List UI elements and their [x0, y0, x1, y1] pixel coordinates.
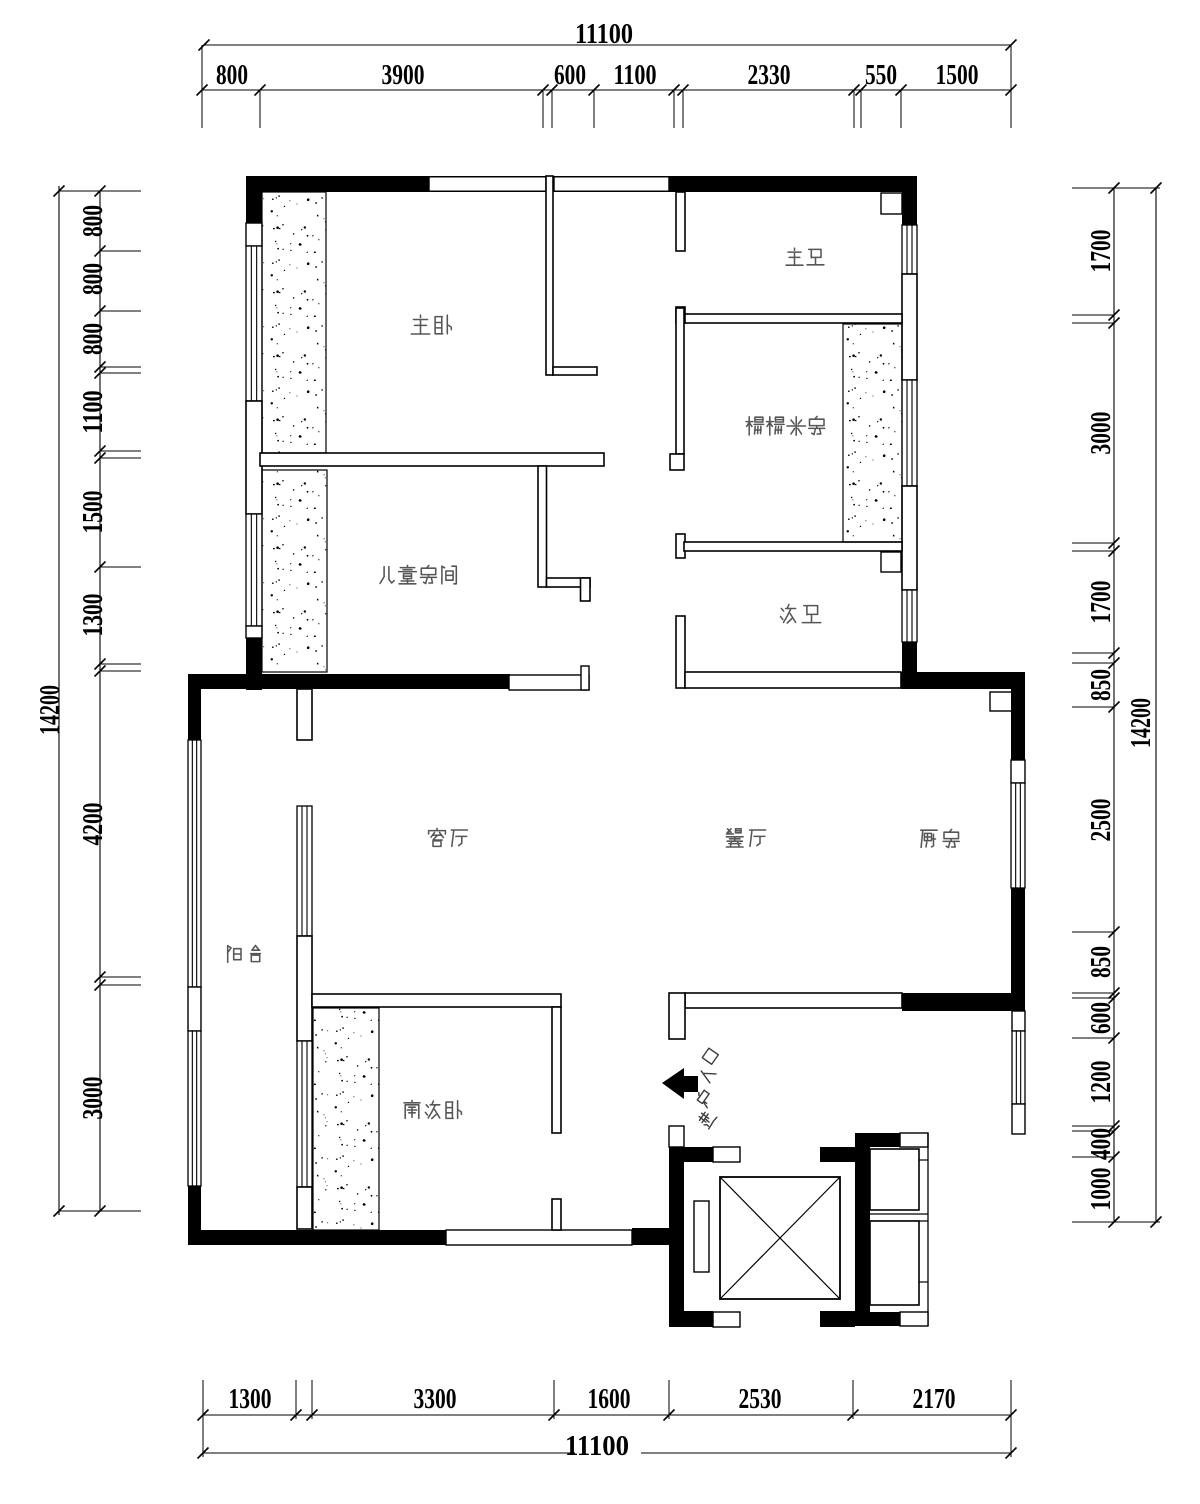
- svg-text:1700: 1700: [1085, 581, 1117, 624]
- svg-text:600: 600: [1085, 1002, 1117, 1034]
- svg-text:3300: 3300: [414, 1383, 457, 1415]
- svg-text:1300: 1300: [229, 1383, 272, 1415]
- svg-text:14200: 14200: [34, 685, 66, 735]
- svg-text:2330: 2330: [748, 59, 791, 91]
- svg-text:1300: 1300: [77, 594, 109, 637]
- svg-text:800: 800: [216, 59, 248, 91]
- svg-text:800: 800: [77, 323, 109, 355]
- svg-text:14200: 14200: [1125, 698, 1157, 748]
- svg-text:1700: 1700: [1085, 230, 1117, 273]
- svg-text:1200: 1200: [1085, 1061, 1117, 1104]
- svg-text:1600: 1600: [588, 1383, 631, 1415]
- svg-text:1000: 1000: [1085, 1168, 1117, 1211]
- svg-text:2530: 2530: [739, 1383, 782, 1415]
- svg-text:400: 400: [1085, 1128, 1117, 1160]
- svg-text:800: 800: [77, 263, 109, 295]
- svg-text:11100: 11100: [575, 18, 633, 50]
- svg-text:1500: 1500: [77, 491, 109, 534]
- svg-text:11100: 11100: [565, 1430, 629, 1462]
- svg-text:600: 600: [554, 59, 586, 91]
- svg-text:1100: 1100: [77, 391, 109, 434]
- svg-text:550: 550: [865, 59, 897, 91]
- svg-text:2170: 2170: [913, 1383, 956, 1415]
- svg-text:850: 850: [1085, 669, 1117, 701]
- svg-text:3000: 3000: [77, 1077, 109, 1120]
- svg-text:3000: 3000: [1085, 412, 1117, 455]
- svg-text:1100: 1100: [614, 59, 657, 91]
- svg-text:4200: 4200: [77, 803, 109, 846]
- svg-text:1500: 1500: [936, 59, 979, 91]
- svg-text:850: 850: [1085, 946, 1117, 978]
- svg-text:800: 800: [77, 205, 109, 237]
- svg-text:2500: 2500: [1085, 799, 1117, 842]
- svg-text:3900: 3900: [382, 59, 425, 91]
